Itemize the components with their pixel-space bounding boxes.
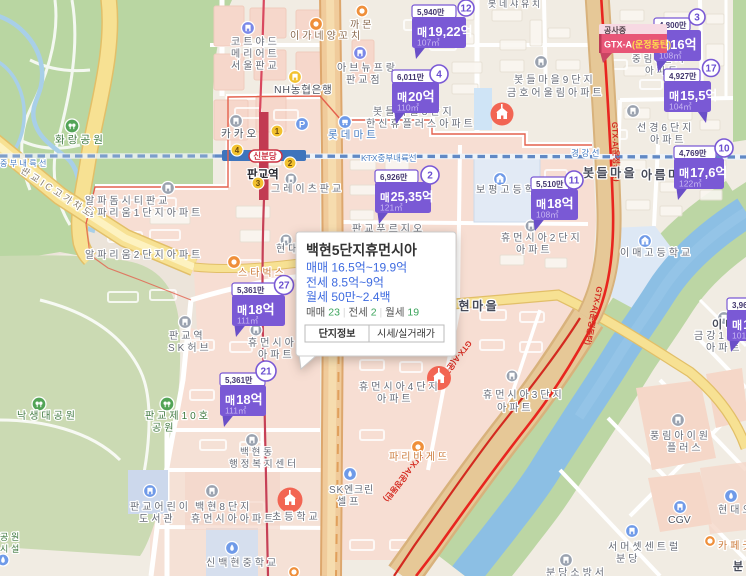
- svg-text:분당: 분당: [733, 559, 746, 573]
- svg-text:122㎡: 122㎡: [679, 179, 702, 189]
- svg-text:풍림아이원: 풍림아이원: [650, 430, 711, 442]
- svg-text:초등학교: 초등학교: [272, 511, 321, 523]
- svg-text:신분당: 신분당: [253, 151, 277, 161]
- svg-text:봇들마을: 봇들마을: [583, 165, 637, 180]
- svg-text:판교역: 판교역: [169, 330, 206, 342]
- svg-text:휴먼시아2단지: 휴먼시아2단지: [501, 232, 583, 244]
- svg-text:코트야드: 코트야드: [231, 36, 280, 48]
- svg-text:카카오: 카카오: [221, 128, 259, 140]
- svg-text:까몬: 까몬: [350, 19, 374, 31]
- svg-text:111㎡: 111㎡: [237, 316, 259, 326]
- svg-text:단지정보: 단지정보: [319, 327, 356, 340]
- svg-text:판교제10호: 판교제10호: [145, 410, 211, 422]
- svg-text:알파리움2단지아파트: 알파리움2단지아파트: [85, 249, 203, 261]
- svg-text:서머셋센트럴: 서머셋센트럴: [608, 540, 681, 553]
- svg-text:서울판교: 서울판교: [231, 60, 280, 72]
- svg-text:107㎡: 107㎡: [417, 38, 440, 48]
- svg-text:중부내륙선: 중부내륙선: [0, 159, 49, 168]
- svg-text:매매 16.5억~19.9억: 매매 16.5억~19.9억: [306, 261, 407, 275]
- svg-text:5,361만: 5,361만: [237, 285, 265, 295]
- svg-text:공원: 공원: [152, 422, 176, 434]
- svg-text:휴먼시아아파트: 휴먼시아아파트: [191, 513, 276, 525]
- svg-text:행정복지센터: 행정복지센터: [229, 458, 299, 470]
- svg-text:휴먼시아3단지: 휴먼시아3단지: [483, 389, 565, 401]
- svg-text:공원: 공원: [0, 532, 22, 542]
- svg-text:4,927만: 4,927만: [669, 71, 697, 81]
- svg-text:아파트: 아파트: [258, 349, 295, 361]
- svg-text:선경6단지: 선경6단지: [637, 121, 694, 134]
- svg-text:110㎡: 110㎡: [397, 103, 420, 113]
- svg-text:휴먼시아4단지: 휴먼시아4단지: [359, 381, 441, 393]
- svg-text:그레이츠판교: 그레이츠판교: [271, 183, 344, 195]
- svg-text:3,96: 3,96: [732, 301, 746, 310]
- svg-text:아파트: 아파트: [516, 244, 553, 256]
- svg-text:이매고등학교: 이매고등학교: [620, 247, 693, 259]
- svg-text:시설: 시설: [0, 544, 22, 554]
- svg-text:봇들마을9단지: 봇들마을9단지: [514, 74, 596, 86]
- svg-text:3: 3: [256, 179, 261, 188]
- svg-text:셀프: 셀프: [337, 496, 361, 508]
- svg-text:3: 3: [694, 13, 700, 24]
- svg-text:아파트: 아파트: [497, 402, 534, 414]
- svg-text:2: 2: [427, 171, 433, 182]
- svg-text:백현8단지: 백현8단지: [195, 501, 252, 513]
- svg-text:시세/실거래가: 시세/실거래가: [377, 328, 435, 340]
- svg-text:4,769만: 4,769만: [679, 148, 707, 158]
- svg-text:도서관: 도서관: [139, 513, 176, 525]
- svg-text:월세 50만~2.4백: 월세 50만~2.4백: [306, 290, 391, 304]
- svg-text:5,940만: 5,940만: [417, 7, 445, 17]
- svg-text:판교어린이: 판교어린이: [130, 501, 191, 513]
- svg-text:카페굿: 카페굿: [718, 540, 746, 552]
- svg-text:공사중: 공사중: [604, 25, 627, 35]
- svg-text:27: 27: [278, 281, 290, 292]
- svg-text:1: 1: [275, 127, 280, 136]
- svg-text:한신휴플러스아파트: 한신휴플러스아파트: [366, 118, 476, 130]
- svg-text:KTX중부내륙선: KTX중부내륙선: [361, 153, 417, 163]
- svg-text:판교점: 판교점: [346, 74, 383, 86]
- svg-text:104㎡: 104㎡: [669, 102, 692, 112]
- svg-text:현대오일뱅: 현대오일뱅: [718, 504, 746, 516]
- svg-text:분당소방서: 분당소방서: [546, 567, 607, 576]
- svg-text:6,011만: 6,011만: [397, 72, 425, 82]
- svg-text:5,510만: 5,510만: [536, 179, 564, 189]
- svg-text:낙생대공원: 낙생대공원: [17, 410, 78, 422]
- svg-text:NH농협은행: NH농협은행: [274, 83, 333, 96]
- svg-text:아브뉴프랑: 아브뉴프랑: [337, 62, 398, 74]
- svg-text:4: 4: [235, 146, 240, 155]
- svg-text:12: 12: [460, 4, 472, 15]
- svg-text:파리바게뜨: 파리바게뜨: [389, 451, 450, 463]
- svg-text:4: 4: [436, 70, 442, 81]
- svg-text:SK엔크린: SK엔크린: [329, 484, 374, 496]
- svg-text:백현동: 백현동: [240, 447, 275, 458]
- svg-text:경강선: 경강선: [571, 148, 602, 158]
- svg-text:아파트: 아파트: [377, 393, 414, 405]
- svg-text:P: P: [299, 119, 306, 130]
- svg-text:2: 2: [288, 159, 293, 168]
- svg-text:아파트: 아파트: [650, 134, 687, 146]
- svg-text:SK허브: SK허브: [168, 342, 212, 354]
- svg-text:전세 8.5억~9억: 전세 8.5억~9억: [306, 276, 384, 290]
- svg-text:메리어트: 메리어트: [231, 48, 280, 60]
- svg-text:111㎡: 111㎡: [225, 406, 247, 416]
- svg-text:17: 17: [705, 64, 717, 75]
- svg-text:분당: 분당: [616, 553, 640, 565]
- svg-text:101: 101: [732, 331, 746, 341]
- svg-text:21: 21: [260, 367, 272, 378]
- svg-text:신백현중학교: 신백현중학교: [206, 557, 279, 569]
- svg-text:화랑공원: 화랑공원: [55, 134, 106, 146]
- svg-text:11: 11: [569, 176, 580, 187]
- svg-text:121㎡: 121㎡: [380, 203, 403, 213]
- svg-text:금호어울림아파트: 금호어울림아파트: [507, 87, 605, 99]
- svg-text:108㎡: 108㎡: [536, 210, 559, 220]
- svg-text:CGV: CGV: [668, 514, 691, 526]
- svg-text:5,361만: 5,361만: [225, 375, 253, 385]
- svg-text:백현5단지휴먼시아: 백현5단지휴먼시아: [306, 242, 417, 258]
- svg-text:봇네샤유치: 봇네샤유치: [488, 0, 543, 9]
- svg-text:플러스: 플러스: [667, 442, 704, 454]
- svg-text:10: 10: [718, 144, 730, 155]
- svg-text:롯데마트: 롯데마트: [328, 129, 379, 141]
- svg-text:GTX-A(운정동탄): GTX-A(운정동탄): [604, 39, 671, 50]
- svg-text:매매 23 | 전세 2 | 월세 19: 매매 23 | 전세 2 | 월세 19: [306, 307, 419, 319]
- svg-text:알파리움1단지아파트: 알파리움1단지아파트: [85, 207, 203, 219]
- svg-text:알파돔시티판교: 알파돔시티판교: [85, 195, 170, 207]
- svg-text:이가네양꼬치: 이가네양꼬치: [290, 30, 363, 42]
- svg-text:6,926만: 6,926만: [380, 172, 408, 182]
